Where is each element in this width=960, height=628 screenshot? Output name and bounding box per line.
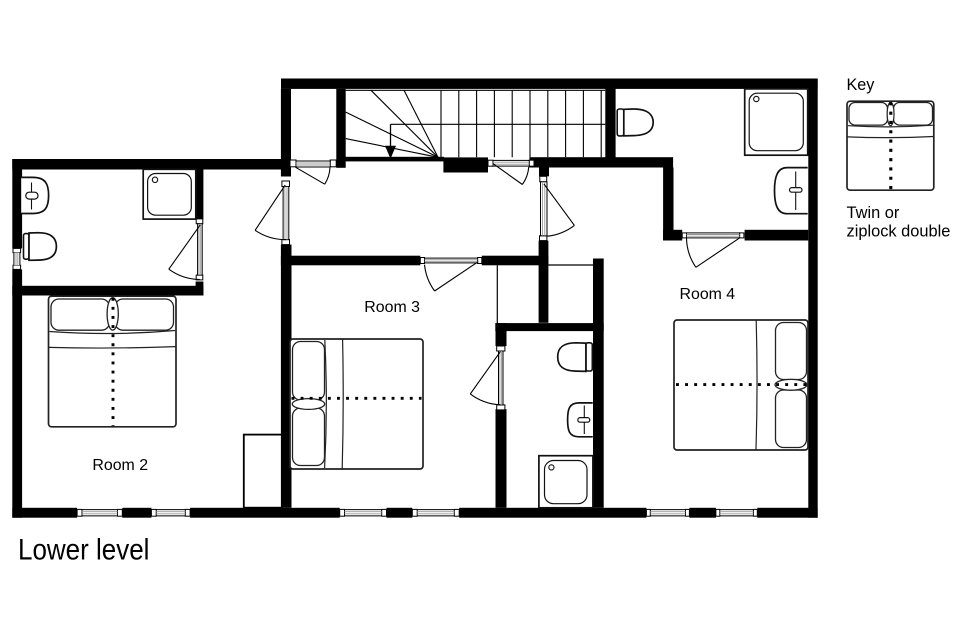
svg-text:Twin or: Twin or bbox=[847, 204, 900, 222]
svg-text:Lower level: Lower level bbox=[18, 533, 149, 566]
svg-text:ziplock double: ziplock double bbox=[847, 222, 951, 240]
svg-text:Room 2: Room 2 bbox=[92, 457, 148, 474]
svg-text:Room 4: Room 4 bbox=[680, 286, 736, 303]
svg-text:Key: Key bbox=[847, 76, 876, 94]
svg-text:Room 3: Room 3 bbox=[364, 299, 420, 316]
